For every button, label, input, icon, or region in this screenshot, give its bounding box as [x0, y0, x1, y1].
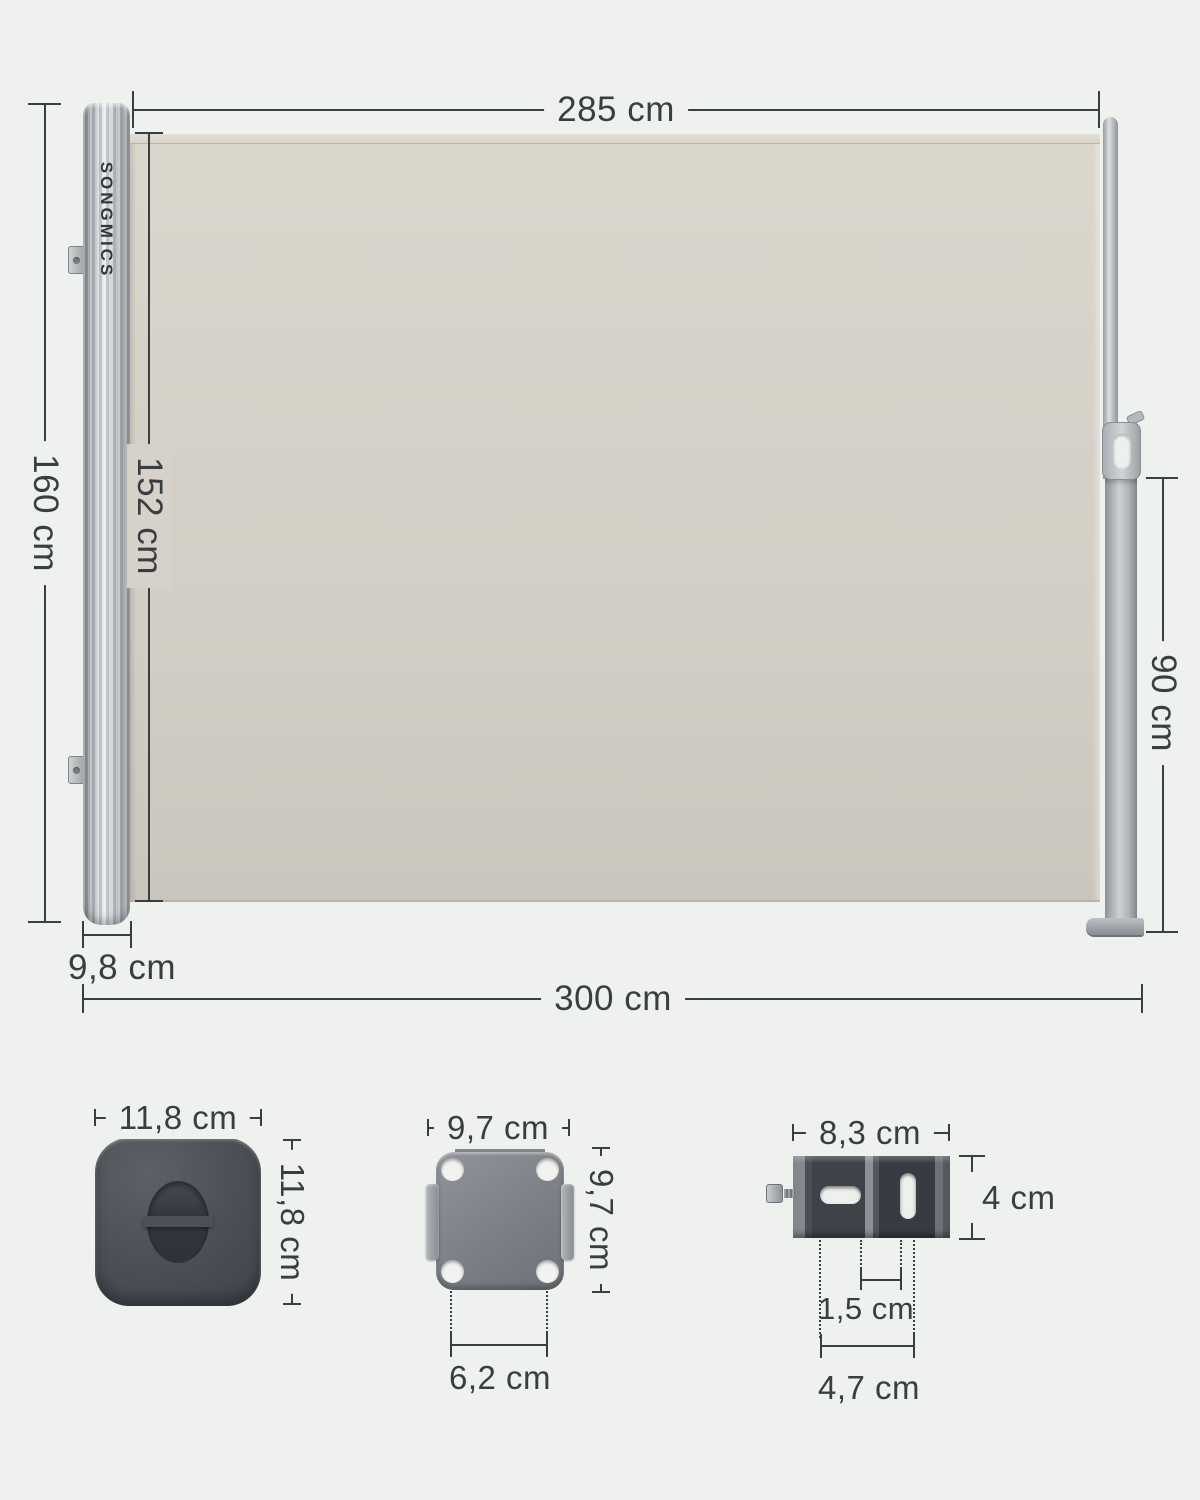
dim-tick: [82, 921, 84, 948]
end-cap-bar: [143, 1216, 213, 1227]
dim-tick: [948, 1124, 950, 1141]
dim-tick: [283, 1139, 301, 1141]
dim-tick: [132, 91, 134, 128]
dim-line-bracket-hole-spacing: [821, 1345, 915, 1347]
dim-tick: [971, 1223, 973, 1240]
dim-label-fabric-height: 152 cm: [127, 444, 171, 588]
awning-fabric: [130, 134, 1100, 902]
dim-line-bracket-slot-gap: [861, 1279, 902, 1281]
plate-hole: [536, 1260, 559, 1283]
plate-clip-right: [561, 1184, 574, 1260]
dim-tick: [792, 1124, 794, 1141]
pull-pole-lower: [1105, 478, 1137, 922]
dim-tick: [592, 1147, 610, 1149]
dim-tick: [450, 1333, 452, 1357]
pull-pole-foot: [1086, 918, 1144, 935]
bracket-screw-thread: [784, 1189, 795, 1198]
leader-dotted-line: [546, 1284, 548, 1336]
dim-tick: [1098, 91, 1100, 128]
leader-dotted-line: [900, 1240, 902, 1272]
fabric-top-rail: [130, 134, 1100, 144]
dim-label-bracket-slot-gap: 1,5 cm: [818, 1291, 914, 1327]
dim-label-cap-height: 11,8 cm: [271, 1150, 313, 1294]
plate-clip-left: [426, 1184, 439, 1260]
dim-label-bracket-width: 8,3 cm: [806, 1112, 934, 1154]
dim-label-plate-height: 9,7 cm: [580, 1156, 622, 1284]
dim-tick: [260, 1109, 262, 1126]
bracket-slot-horizontal: [820, 1186, 861, 1204]
dim-label-cap-width: 11,8 cm: [106, 1097, 250, 1139]
bracket-screw: [766, 1184, 783, 1203]
dim-label-top-width: 285 cm: [544, 88, 688, 132]
dim-label-plate-hole-spacing: 6,2 cm: [449, 1359, 551, 1397]
dim-tick: [130, 921, 132, 948]
dim-line-plate-hole-spacing: [451, 1344, 548, 1346]
dim-label-bracket-height: 4 cm: [982, 1179, 1056, 1217]
dim-tick: [1146, 931, 1178, 933]
dim-tick: [568, 1119, 570, 1136]
pull-pole-handle: [1102, 422, 1141, 480]
dim-label-pole-height: 90 cm: [1141, 641, 1185, 765]
wall-bracket-part: [793, 1156, 950, 1238]
dim-tick: [427, 1119, 429, 1136]
dim-tick: [820, 1334, 822, 1358]
plate-hole: [536, 1158, 559, 1181]
brand-logo: SONGMICS: [96, 162, 116, 279]
dim-tick: [913, 1334, 915, 1358]
product-dimension-diagram: SONGMICS 285 cm 160 cm 152 cm 90 cm 9,8 …: [0, 0, 1200, 1500]
bracket-slot-vertical: [900, 1173, 916, 1219]
dim-tick: [1146, 477, 1178, 479]
dim-tick: [135, 900, 163, 902]
plate-hole: [441, 1260, 464, 1283]
dim-tick: [971, 1155, 973, 1172]
dim-tick: [135, 132, 163, 134]
dim-tick: [1141, 984, 1143, 1013]
dim-tick: [900, 1269, 902, 1290]
dim-tick: [94, 1109, 96, 1126]
dim-tick: [82, 984, 84, 1013]
leader-dotted-line: [450, 1284, 452, 1336]
dim-tick: [546, 1333, 548, 1357]
dim-tick: [28, 921, 61, 923]
dim-label-bracket-hole-spacing: 4,7 cm: [818, 1369, 920, 1407]
dim-label-cassette-depth: 9,8 cm: [68, 948, 176, 988]
handle-grip-hole: [1113, 434, 1131, 469]
dim-label-plate-width: 9,7 cm: [434, 1107, 562, 1149]
dim-line-cassette-depth: [83, 934, 131, 936]
dim-tick: [592, 1291, 610, 1293]
dim-label-total-height: 160 cm: [23, 441, 67, 585]
dim-label-total-width: 300 cm: [541, 977, 685, 1021]
dim-tick: [283, 1303, 301, 1305]
dim-tick: [860, 1269, 862, 1290]
dim-tick: [28, 103, 61, 105]
plate-hole: [441, 1158, 464, 1181]
leader-dotted-line: [860, 1240, 862, 1272]
